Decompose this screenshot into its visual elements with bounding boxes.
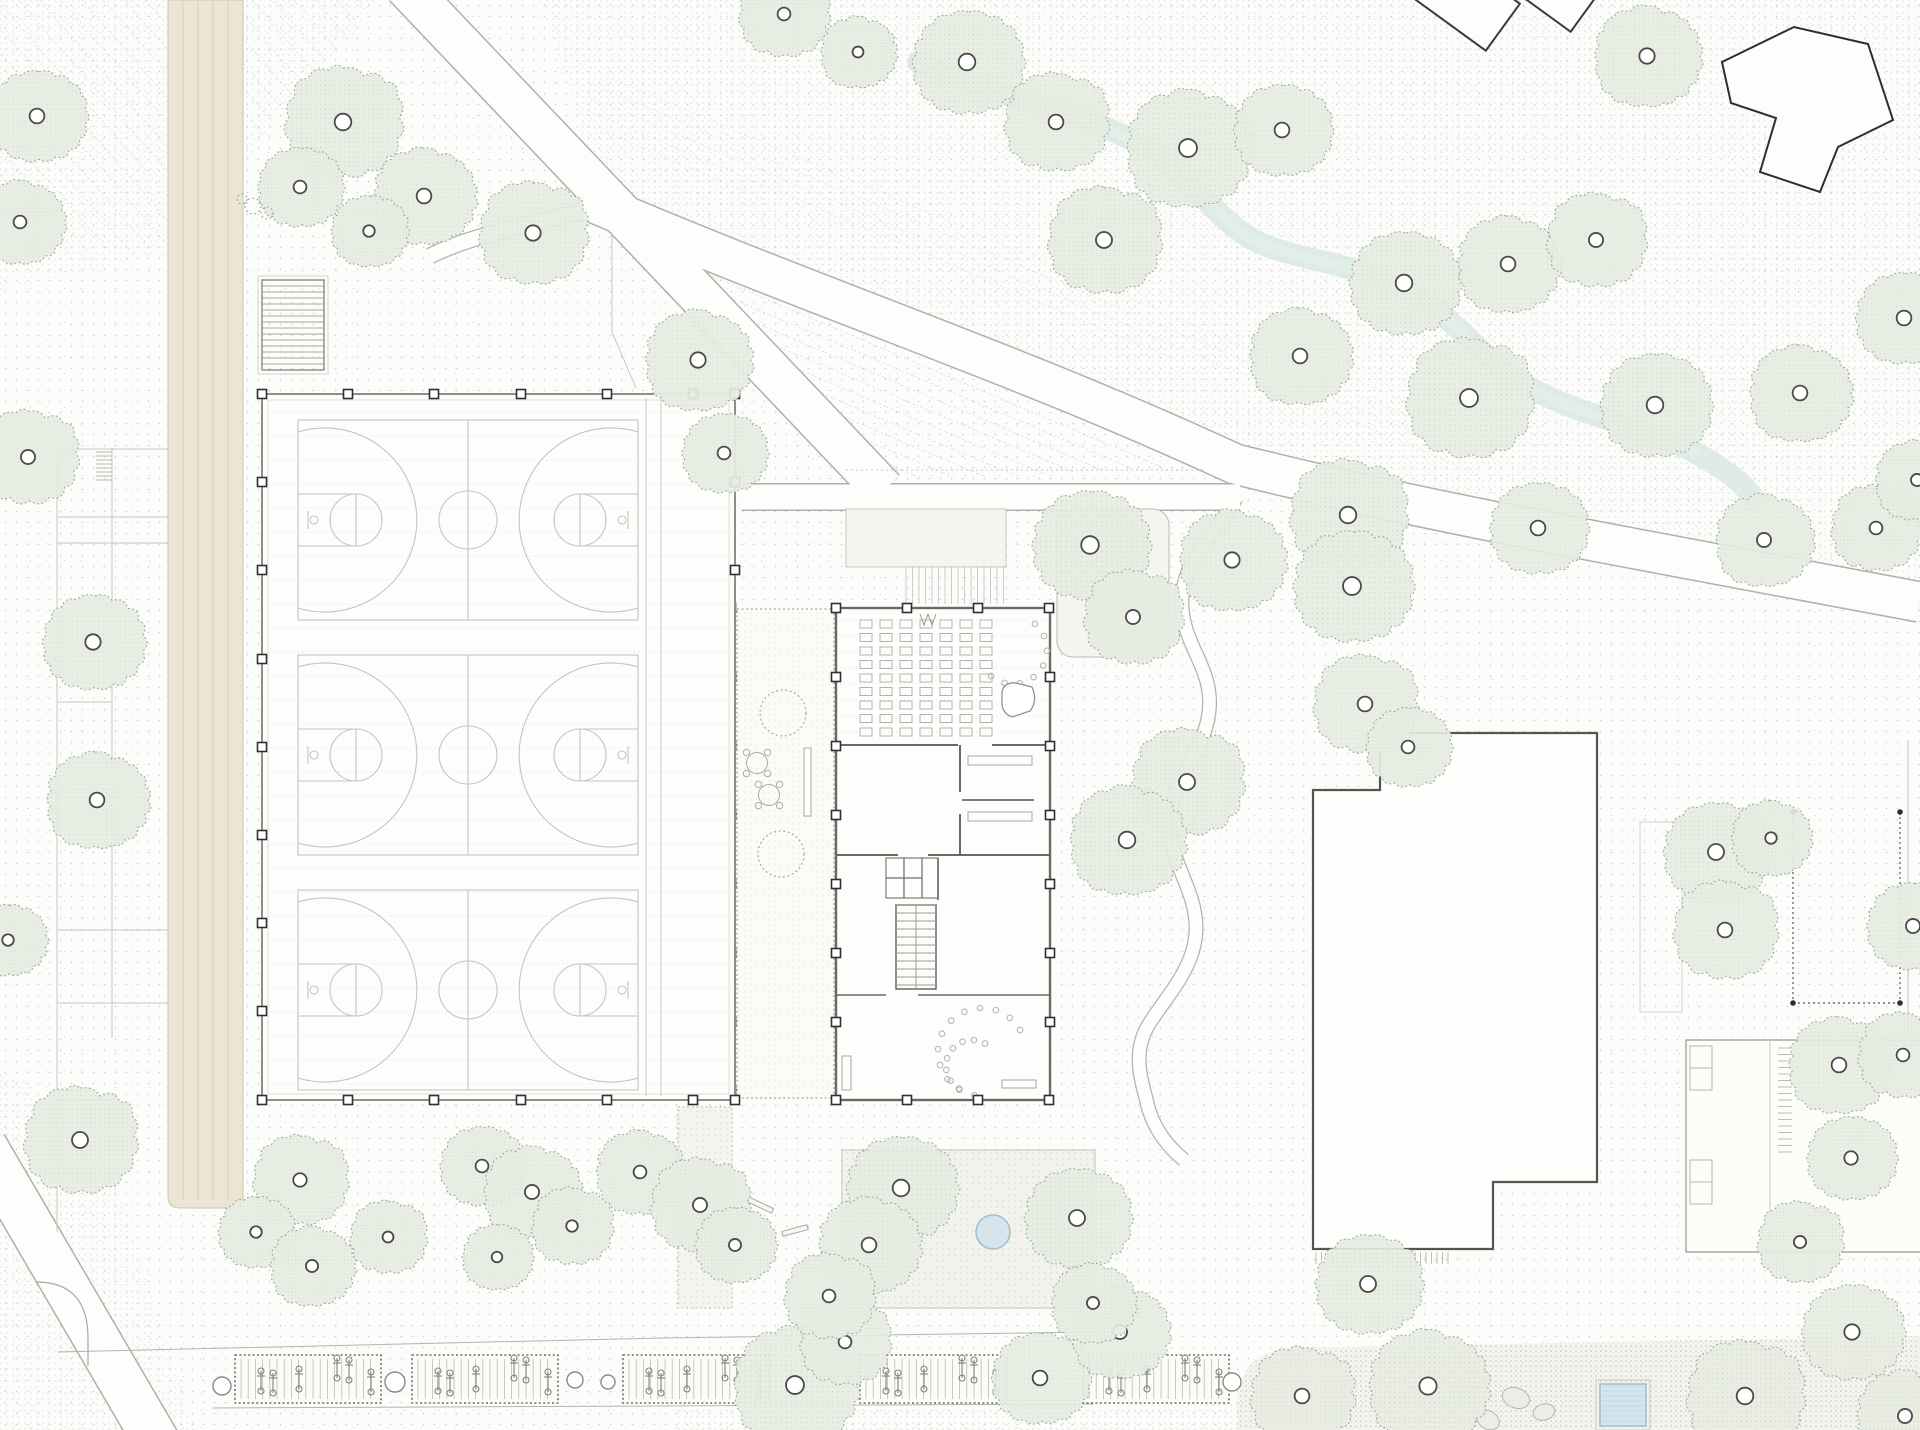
school-building-layer (832, 604, 1055, 1105)
sports-hall-layer (258, 390, 740, 1105)
site-plan-drawing (0, 0, 1920, 1430)
running-track-layer (168, 0, 243, 1208)
east-building-layer (1313, 733, 1682, 1264)
covered-courtyard-layer (727, 604, 835, 1099)
site-plan-canvas (0, 0, 1920, 1430)
